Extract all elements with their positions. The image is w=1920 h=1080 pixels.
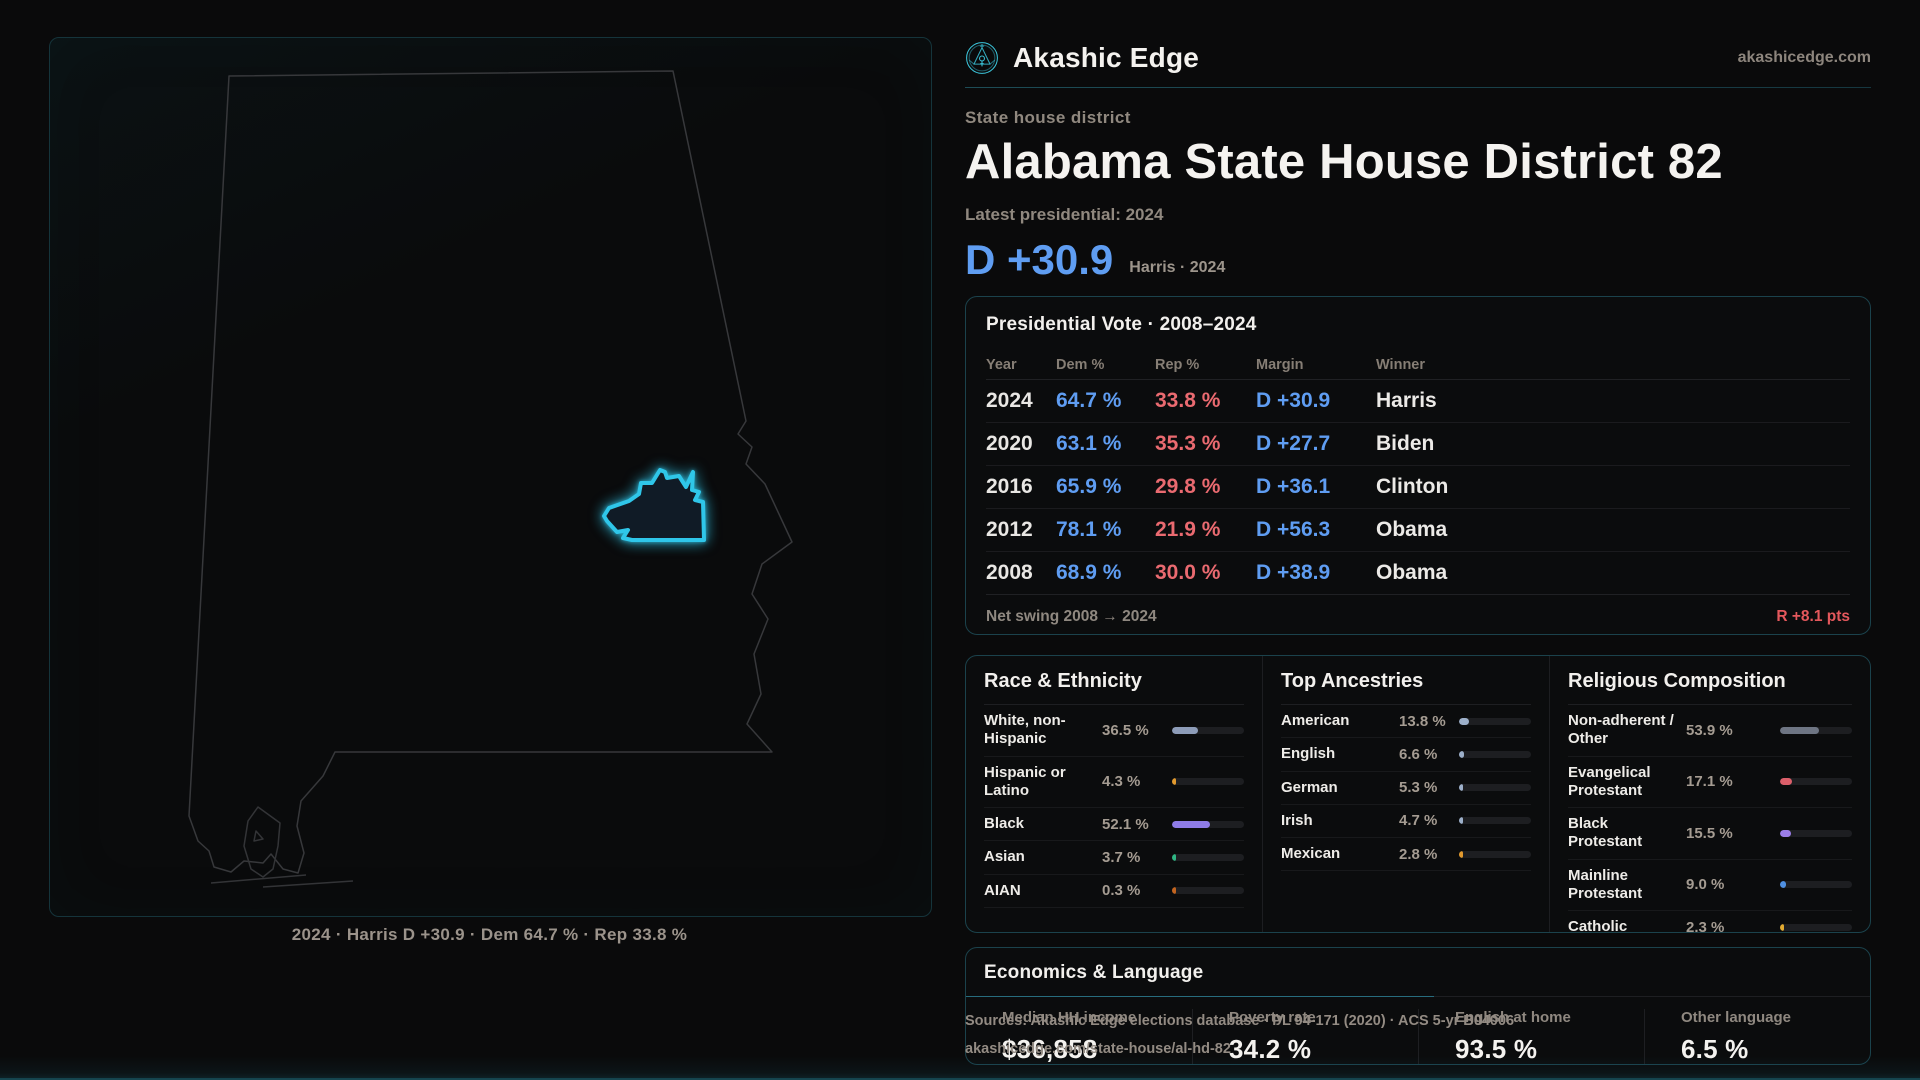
- demographics-bar-track: [1172, 727, 1244, 734]
- demographics-row: Non-adherent / Other53.9 %: [1568, 705, 1852, 757]
- presidential-cell-margin: D +38.9: [1256, 561, 1376, 585]
- report-column: Akashic Edge akashicedge.com State house…: [965, 40, 1871, 1065]
- coastline-west: [211, 875, 306, 883]
- headline-margin: D +30.9: [965, 239, 1113, 281]
- demographics-bar-fill: [1780, 778, 1792, 785]
- presidential-cell-year: 2016: [986, 475, 1056, 499]
- presidential-cell-dem: 68.9 %: [1056, 561, 1155, 585]
- presidential-cell-dem: 78.1 %: [1056, 518, 1155, 542]
- presidential-cell-margin: D +56.3: [1256, 518, 1376, 542]
- demographics-bar-fill: [1172, 727, 1198, 734]
- presidential-row: 201665.9 %29.8 %D +36.1Clinton: [986, 466, 1850, 509]
- presidential-cell-winner: Obama: [1376, 518, 1850, 542]
- presidential-cell-year: 2008: [986, 561, 1056, 585]
- demographics-bar-fill: [1459, 817, 1463, 824]
- demographics-bar-fill: [1459, 851, 1463, 858]
- presidential-cell-winner: Clinton: [1376, 475, 1850, 499]
- demographics-value: 9.0 %: [1686, 876, 1724, 893]
- presidential-row: 202063.1 %35.3 %D +27.7Biden: [986, 423, 1850, 466]
- demographics-label: Evangelical Protestant: [1568, 764, 1686, 801]
- coastal-islet: [254, 831, 263, 841]
- demographics-row: Mexican2.8 %: [1281, 838, 1531, 871]
- net-swing-row: Net swing 2008 → 2024 R +8.1 pts: [986, 594, 1850, 635]
- demographics-column: Religious CompositionNon-adherent / Othe…: [1549, 656, 1870, 933]
- demographics-bar-track: [1780, 778, 1852, 785]
- demographics-card: Race & EthnicityWhite, non-Hispanic36.5 …: [965, 655, 1871, 933]
- demographics-row: Hispanic or Latino4.3 %: [984, 757, 1244, 809]
- demographics-label: Irish: [1281, 812, 1399, 830]
- demographics-bar-fill: [1780, 727, 1819, 734]
- presidential-row: 202464.7 %33.8 %D +30.9Harris: [986, 380, 1850, 423]
- demographics-label: Black: [984, 815, 1102, 833]
- demographics-label: Mexican: [1281, 845, 1399, 863]
- demographics-row: Irish4.7 %: [1281, 805, 1531, 838]
- demographics-bar-track: [1172, 821, 1244, 828]
- coastline-east: [263, 881, 353, 887]
- demographics-bar-track: [1780, 830, 1852, 837]
- presidential-row: 200868.9 %30.0 %D +38.9Obama: [986, 552, 1850, 594]
- brand-domain-link[interactable]: akashicedge.com: [1738, 49, 1871, 67]
- economics-stat-value: 93.5 %: [1455, 1034, 1644, 1065]
- demographics-row: White, non-Hispanic36.5 %: [984, 705, 1244, 757]
- presidential-cell-year: 2020: [986, 432, 1056, 456]
- presidential-cell-year: 2024: [986, 389, 1056, 413]
- demographics-label: Asian: [984, 848, 1102, 866]
- economics-accent-line: [966, 996, 1434, 997]
- demographics-bar-fill: [1780, 830, 1791, 837]
- presidential-cell-rep: 30.0 %: [1155, 561, 1256, 585]
- economics-card: Economics & Language Median HH income$36…: [965, 947, 1871, 1065]
- demographics-column: Race & EthnicityWhite, non-Hispanic36.5 …: [966, 656, 1262, 933]
- demographics-value: 36.5 %: [1102, 722, 1149, 739]
- economics-stat-label: Poverty rate: [1229, 1009, 1418, 1026]
- demographics-label: Catholic: [1568, 918, 1686, 933]
- presidential-row: 201278.1 %21.9 %D +56.3Obama: [986, 509, 1850, 552]
- demographics-value: 5.3 %: [1399, 779, 1437, 796]
- demographics-label: German: [1281, 779, 1399, 797]
- demographics-row: AIAN0.3 %: [984, 875, 1244, 908]
- demographics-bar-track: [1172, 778, 1244, 785]
- demographics-row: Black52.1 %: [984, 808, 1244, 841]
- district-82-shape[interactable]: [604, 470, 704, 540]
- presidential-rows: 202464.7 %33.8 %D +30.9Harris202063.1 %3…: [986, 380, 1850, 594]
- economics-stat-label: English at home: [1455, 1009, 1644, 1026]
- demographics-bar-track: [1780, 924, 1852, 931]
- presidential-cell-rep: 35.3 %: [1155, 432, 1256, 456]
- presidential-card-title: Presidential Vote · 2008–2024: [986, 314, 1850, 336]
- demographics-value: 53.9 %: [1686, 722, 1733, 739]
- demographics-bar-fill: [1172, 778, 1176, 785]
- page-title: Alabama State House District 82: [965, 136, 1871, 189]
- demographics-bar-track: [1459, 817, 1531, 824]
- presidential-cell-dem: 64.7 %: [1056, 389, 1155, 413]
- demographics-value: 2.8 %: [1399, 846, 1437, 863]
- col-header-rep: Rep %: [1155, 357, 1256, 373]
- economics-stat: English at home93.5 %: [1418, 1009, 1644, 1065]
- alabama-state-outline: [189, 71, 792, 873]
- demographics-row: Catholic2.3 %: [1568, 911, 1852, 933]
- col-header-winner: Winner: [1376, 357, 1850, 373]
- demographics-value: 0.3 %: [1102, 882, 1140, 899]
- brand-header: Akashic Edge akashicedge.com: [965, 40, 1871, 76]
- demographics-bar-track: [1780, 881, 1852, 888]
- demographics-label: American: [1281, 712, 1399, 730]
- brand-left: Akashic Edge: [965, 41, 1199, 75]
- col-header-dem: Dem %: [1056, 357, 1155, 373]
- demographics-row: Black Protestant15.5 %: [1568, 808, 1852, 860]
- economics-stat: Other language6.5 %: [1644, 1009, 1870, 1065]
- economics-card-title: Economics & Language: [966, 962, 1870, 984]
- demographics-section-title: Top Ancestries: [1281, 670, 1531, 705]
- demographics-bar-fill: [1780, 924, 1784, 931]
- presidential-cell-winner: Biden: [1376, 432, 1850, 456]
- demographics-label: Black Protestant: [1568, 815, 1686, 852]
- headline-row: D +30.9 Harris · 2024: [965, 237, 1871, 281]
- headline-context: Harris · 2024: [1129, 259, 1225, 281]
- demographics-value: 3.7 %: [1102, 849, 1140, 866]
- demographics-value: 15.5 %: [1686, 825, 1733, 842]
- demographics-label: AIAN: [984, 882, 1102, 900]
- demographics-bar-track: [1459, 718, 1531, 725]
- demographics-bar-fill: [1172, 821, 1210, 828]
- demographics-label: White, non-Hispanic: [984, 712, 1102, 749]
- economics-stat: Median HH income$36,858: [966, 1009, 1192, 1065]
- demographics-value: 13.8 %: [1399, 713, 1446, 730]
- presidential-vote-card: Presidential Vote · 2008–2024 Year Dem %…: [965, 296, 1871, 635]
- col-header-margin: Margin: [1256, 357, 1376, 373]
- demographics-value: 52.1 %: [1102, 816, 1149, 833]
- district-map-panel[interactable]: [49, 37, 932, 917]
- demographics-row: English6.6 %: [1281, 738, 1531, 771]
- demographics-value: 2.3 %: [1686, 919, 1724, 933]
- demographics-bar-track: [1780, 727, 1852, 734]
- demographics-bar-fill: [1459, 784, 1463, 791]
- presidential-cell-winner: Obama: [1376, 561, 1850, 585]
- col-header-year: Year: [986, 357, 1056, 373]
- demographics-section-title: Race & Ethnicity: [984, 670, 1244, 705]
- presidential-cell-dem: 63.1 %: [1056, 432, 1155, 456]
- demographics-bar-track: [1459, 784, 1531, 791]
- demographics-row: Evangelical Protestant17.1 %: [1568, 757, 1852, 809]
- presidential-cell-rep: 33.8 %: [1155, 389, 1256, 413]
- mobile-peninsula-outline: [244, 807, 280, 877]
- economics-stat: Poverty rate34.2 %: [1192, 1009, 1418, 1065]
- demographics-value: 17.1 %: [1686, 773, 1733, 790]
- demographics-column: Top AncestriesAmerican13.8 %English6.6 %…: [1262, 656, 1549, 933]
- demographics-value: 6.6 %: [1399, 746, 1437, 763]
- demographics-value: 4.3 %: [1102, 773, 1140, 790]
- header-divider: [965, 87, 1871, 88]
- map-caption: 2024 · Harris D +30.9 · Dem 64.7 % · Rep…: [49, 925, 930, 945]
- presidential-cell-margin: D +30.9: [1256, 389, 1376, 413]
- page: 2024 · Harris D +30.9 · Dem 64.7 % · Rep…: [0, 0, 1920, 1080]
- net-swing-value: R +8.1 pts: [1776, 608, 1850, 626]
- demographics-row: Mainline Protestant9.0 %: [1568, 860, 1852, 912]
- presidential-table-header: Year Dem % Rep % Margin Winner: [986, 351, 1850, 380]
- economics-stat-value: $36,858: [1002, 1034, 1192, 1065]
- demographics-label: Hispanic or Latino: [984, 764, 1102, 801]
- demographics-label: Mainline Protestant: [1568, 867, 1686, 904]
- demographics-label: Non-adherent / Other: [1568, 712, 1686, 749]
- demographics-bar-fill: [1172, 854, 1176, 861]
- brand-logo-icon: [965, 41, 999, 75]
- demographics-section-title: Religious Composition: [1568, 670, 1852, 705]
- alabama-map: [50, 38, 931, 916]
- demographics-row: American13.8 %: [1281, 705, 1531, 738]
- presidential-cell-rep: 29.8 %: [1155, 475, 1256, 499]
- demographics-bar-fill: [1459, 718, 1469, 725]
- economics-stat-label: Median HH income: [1002, 1009, 1192, 1026]
- demographics-bar-fill: [1780, 881, 1786, 888]
- demographics-row: Asian3.7 %: [984, 841, 1244, 874]
- economics-stat-label: Other language: [1681, 1009, 1870, 1026]
- net-swing-label: Net swing 2008 → 2024: [986, 608, 1157, 626]
- demographics-bar-track: [1459, 851, 1531, 858]
- economics-stat-value: 6.5 %: [1681, 1034, 1870, 1065]
- presidential-cell-margin: D +27.7: [1256, 432, 1376, 456]
- brand-name: Akashic Edge: [1013, 42, 1199, 74]
- latest-presidential-label: Latest presidential: 2024: [965, 205, 1871, 225]
- demographics-value: 4.7 %: [1399, 812, 1437, 829]
- demographics-bar-track: [1172, 887, 1244, 894]
- economics-stat-value: 34.2 %: [1229, 1034, 1418, 1065]
- presidential-cell-dem: 65.9 %: [1056, 475, 1155, 499]
- economics-divider: [966, 996, 1870, 997]
- demographics-row: German5.3 %: [1281, 772, 1531, 805]
- presidential-cell-margin: D +36.1: [1256, 475, 1376, 499]
- demographics-bar-fill: [1459, 751, 1464, 758]
- presidential-cell-rep: 21.9 %: [1155, 518, 1256, 542]
- demographics-label: English: [1281, 745, 1399, 763]
- demographics-bar-track: [1459, 751, 1531, 758]
- presidential-cell-winner: Harris: [1376, 389, 1850, 413]
- demographics-bar-track: [1172, 854, 1244, 861]
- demographics-bar-fill: [1172, 887, 1176, 894]
- presidential-cell-year: 2012: [986, 518, 1056, 542]
- district-type-label: State house district: [965, 108, 1871, 128]
- economics-stats: Median HH income$36,858Poverty rate34.2 …: [966, 1009, 1870, 1065]
